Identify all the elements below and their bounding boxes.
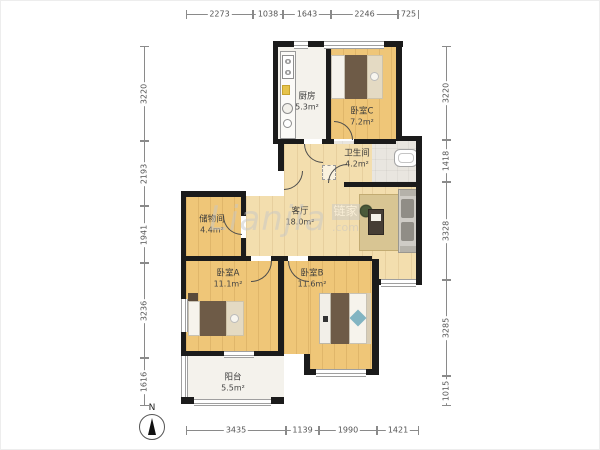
stove-icon [282,55,294,79]
dimension-label: 1015 [442,379,451,403]
dimension-label: 1643 [295,10,319,19]
room-living-floor-left [246,196,284,256]
room-label-living: 客厅18.0m² [286,206,315,227]
room-label-bedroom-a: 卧室A11.1m² [214,268,243,289]
dimension-top-1: 2273 [186,9,253,21]
nightstand-icon [188,293,198,301]
window [381,279,416,287]
wall [308,256,372,261]
window [181,299,188,332]
wall [278,139,284,171]
dimension-left-1: 3220 [139,46,151,141]
dimension-right-4: 3285 [441,280,453,376]
dimension-right-2: 1418 [441,140,453,182]
dimension-label: 3328 [442,219,451,243]
wall [366,369,379,375]
floor-plan-page: 2273 1038 1643 2246 725 3435 1139 1990 1… [0,0,600,450]
wall [396,41,402,141]
wall [181,397,194,404]
coffee-table-icon [368,209,384,235]
dimension-top-5: 725 [398,9,419,21]
wall [304,369,316,375]
dimension-right-1: 3220 [441,46,453,140]
dimension-label: 2273 [207,10,231,19]
wall [254,351,284,356]
dimension-left-4: 3236 [139,263,151,358]
sofa-icon [398,189,418,253]
wall [181,191,246,197]
dimension-label: 725 [399,10,418,19]
dimension-label: 2193 [140,161,149,185]
dimension-label: 3285 [442,316,451,340]
wall [181,191,186,259]
room-label-balcony: 阳台5.5m² [221,372,245,393]
north-compass: N [137,403,167,440]
dimension-left-2: 2193 [139,141,151,206]
bed-bedroom-c-icon [331,55,383,99]
wall [326,47,331,141]
wall [278,259,284,356]
compass-n-label: N [137,403,167,413]
dimension-label: 1139 [290,426,314,435]
dimension-label: 3220 [442,81,451,105]
dimension-left-5: 1616 [139,358,151,406]
window [294,41,308,49]
bathtub-icon [394,149,418,167]
dimension-label: 1616 [140,370,149,394]
room-label-bathroom: 卫生间4.2m² [344,148,370,169]
dimension-top-2: 1038 [253,9,283,21]
dimension-label: 1038 [256,10,280,19]
dimension-label: 3236 [140,298,149,322]
window [181,356,188,397]
wardrobe-icon [319,293,331,344]
kitchen-item-icon [282,85,290,95]
room-label-bedroom-b: 卧室B11.6m² [298,268,327,289]
dimension-label: 3435 [224,426,248,435]
dimension-right-5: 1015 [441,376,453,406]
compass-circle [139,414,165,440]
window [324,41,384,49]
wall [416,136,422,285]
bed-bedroom-a-icon [188,301,244,336]
window [316,369,366,377]
bed-bedroom-b-icon [331,293,371,344]
wall [181,259,186,299]
floor-plan: 厨房5.3m² 卧室C7.2m² 卫生间4.2m² 客厅18.0m² 储物间4.… [176,39,428,409]
room-label-storage: 储物间4.4m² [199,214,225,235]
dimension-bottom-3: 1990 [319,425,377,437]
window [194,399,271,406]
dimension-right-3: 3328 [441,182,453,280]
dimension-top-3: 1643 [283,9,331,21]
dimension-label: 3220 [140,81,149,105]
dimension-bottom-1: 3435 [186,425,286,437]
wall [354,139,396,144]
room-label-bedroom-c: 卧室C7.2m² [350,106,374,127]
dimension-top-4: 2246 [331,9,398,21]
dimension-left-3: 1941 [139,206,151,263]
dimension-bottom-4: 1421 [377,425,419,437]
north-arrow-icon [148,418,156,435]
dimension-label: 1941 [140,222,149,246]
room-label-kitchen: 厨房5.3m² [295,91,319,112]
balcony-sliding-door [224,351,254,358]
dimension-label: 1418 [442,149,451,173]
dimension-label: 2246 [352,10,376,19]
wall [181,256,251,261]
wall [344,182,422,187]
dimension-bottom-2: 1139 [286,425,319,437]
wall [374,279,381,285]
dimension-label: 1990 [336,426,360,435]
sink-basin-icon [283,119,292,128]
wall [372,259,379,375]
wall [416,279,422,285]
dimension-label: 1421 [386,426,410,435]
wall [273,41,278,144]
sink-icon [282,103,293,114]
wall [241,191,246,216]
wall [271,397,284,404]
